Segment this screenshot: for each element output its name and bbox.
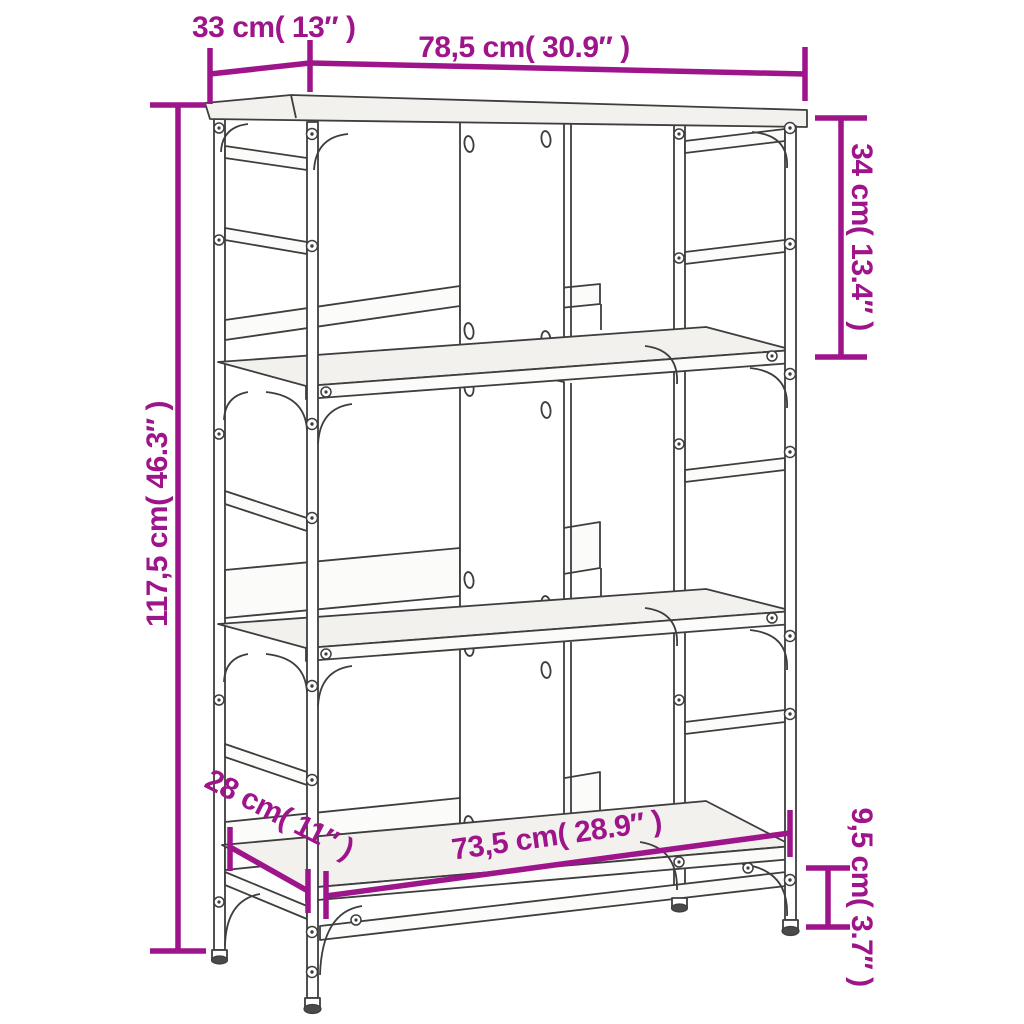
dimension-top-width: 78,5 cm( 30.9″ ) <box>310 31 805 101</box>
dimension-diagram: 33 cm( 13″ ) 78,5 cm( 30.9″ ) 34 cm( 13.… <box>0 0 1024 1024</box>
dimension-top-shelf-height: 34 cm( 13.4″ ) <box>815 118 878 357</box>
dimension-overall-height: 117,5 cm( 46.3″ ) <box>141 105 206 951</box>
bookshelf-line-drawing <box>205 95 807 1014</box>
top-shelf-height-label: 34 cm( 13.4″ ) <box>845 143 878 330</box>
top-width-label: 78,5 cm( 30.9″ ) <box>418 31 630 64</box>
top-board <box>205 95 807 127</box>
top-depth-label: 33 cm( 13″ ) <box>192 11 355 44</box>
divider-panels <box>460 111 571 875</box>
ground-clearance-label: 9,5 cm( 3.7″ ) <box>845 807 878 986</box>
product-dimension-screenshot: 33 cm( 13″ ) 78,5 cm( 30.9″ ) 34 cm( 13.… <box>0 0 1024 1024</box>
dimension-top-depth: 33 cm( 13″ ) <box>192 11 355 104</box>
overall-height-label: 117,5 cm( 46.3″ ) <box>141 401 174 627</box>
dimension-ground-clearance: 9,5 cm( 3.7″ ) <box>806 807 878 986</box>
